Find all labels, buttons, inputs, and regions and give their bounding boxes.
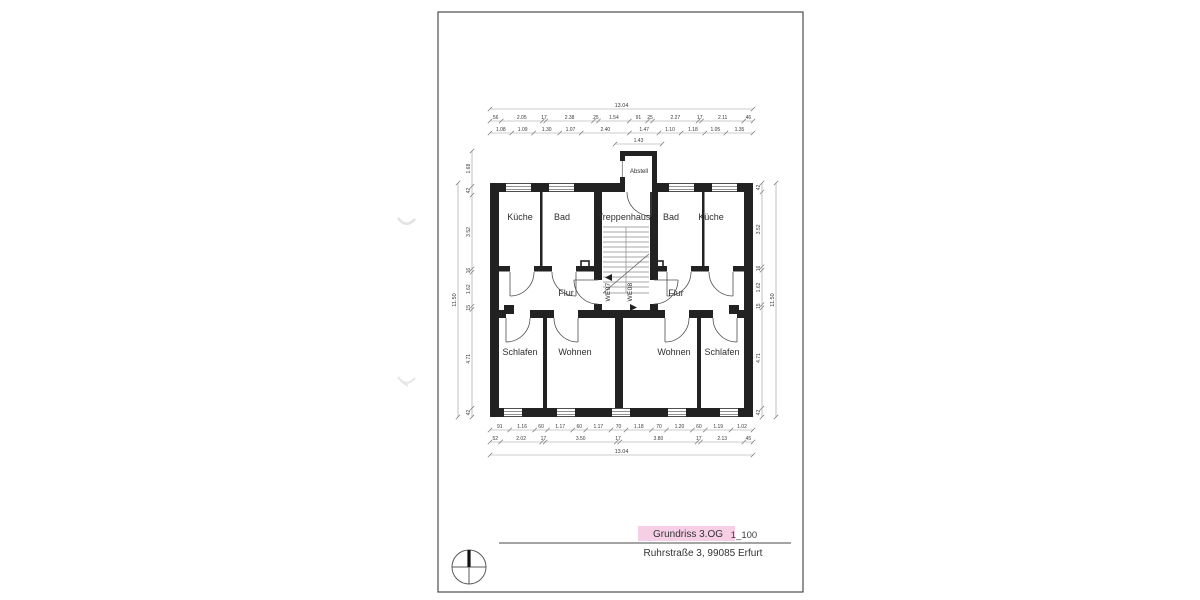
window-bottom-5 <box>720 409 738 416</box>
unit-label-we07: WE07 <box>605 282 612 301</box>
dim-value: 17 <box>615 436 621 442</box>
room-label-kueche-right: Küche <box>698 212 724 222</box>
scanned-drawing-canvas: Abstell Küche Bad Treppenhaus Bad Küche … <box>0 0 1200 600</box>
dim-value: 1.35 <box>735 127 745 133</box>
dim-value: 25 <box>593 115 599 121</box>
wall-kueche-bad-left <box>540 192 543 266</box>
scan-smudge <box>398 218 415 224</box>
dim-value: 3.80 <box>654 436 664 442</box>
dim-value: 1.54 <box>609 115 619 121</box>
dim-value: 1.62 <box>466 284 472 294</box>
window-bottom-2 <box>557 409 575 416</box>
dim-value: 42 <box>756 410 762 416</box>
dim-value: 60 <box>576 424 582 430</box>
dim-value: 91 <box>497 424 503 430</box>
chimney-block <box>504 305 514 314</box>
wall-flur-upper <box>733 266 744 272</box>
dim-value: 2.40 <box>600 127 610 133</box>
dim-value: 1.30 <box>542 127 552 133</box>
party-wall <box>615 318 623 408</box>
drawing-title: Grundriss 3.OG <box>653 529 723 540</box>
dim-value: 13.04 <box>615 103 629 109</box>
dim-value: 1.18 <box>688 127 698 133</box>
room-label-bad-left: Bad <box>554 212 570 222</box>
drawing-address: Ruhrstraße 3, 99085 Erfurt <box>644 548 763 559</box>
dim-value: 70 <box>656 424 662 430</box>
dim-value: 1.68 <box>466 164 472 174</box>
wall-flur-upper <box>691 266 709 272</box>
dim-value: 70 <box>616 424 622 430</box>
dim-value: 1.16 <box>517 424 527 430</box>
dim-value: 1.47 <box>639 127 649 133</box>
dim-value: 3.52 <box>756 224 762 234</box>
dim-value: 25 <box>647 115 653 121</box>
room-label-kueche-left: Küche <box>507 212 533 222</box>
dim-value: 1.62 <box>756 282 762 292</box>
dim-value: 2.05 <box>517 115 527 121</box>
wall-flur-lower <box>689 310 713 318</box>
room-label-flur-left: Flur <box>558 288 574 298</box>
dim-value: 42 <box>756 184 762 190</box>
dim-value: 91 <box>636 115 642 121</box>
chimney-block <box>609 310 619 318</box>
scan-smudge <box>398 377 415 386</box>
dim-value: 42 <box>466 410 472 416</box>
room-label-abstell: Abstell <box>630 169 648 175</box>
dim-value: 15 <box>466 305 472 311</box>
dim-value: 1.20 <box>675 424 685 430</box>
unit-label-we08: WE08 <box>627 282 634 301</box>
window-abstell <box>620 161 626 177</box>
dim-value: 1.07 <box>566 127 576 133</box>
room-label-schlafen-left: Schlafen <box>502 347 537 357</box>
wall-treppenhaus-left <box>594 192 602 280</box>
dim-value: 17 <box>541 436 547 442</box>
dim-value: 4.71 <box>756 353 762 363</box>
wall-flur-upper <box>534 266 552 272</box>
window-bottom-1 <box>504 409 522 416</box>
window-top-kueche-left <box>506 184 531 191</box>
dim-value: 52 <box>493 436 499 442</box>
dim-value: 1.02 <box>737 424 747 430</box>
north-compass-icon <box>452 550 486 584</box>
dim-value: 16 <box>756 266 762 272</box>
dim-value: 60 <box>538 424 544 430</box>
dim-value: 1.10 <box>665 127 675 133</box>
dim-value: 4.71 <box>466 354 472 364</box>
dim-value: 2.38 <box>565 115 575 121</box>
dim-value: 15 <box>756 303 762 309</box>
dim-value: 1.09 <box>518 127 528 133</box>
scan-artifacts <box>398 218 415 386</box>
room-label-treppenhaus: Treppenhaus <box>598 212 651 222</box>
wall-bad-kueche-right <box>702 192 705 266</box>
room-label-wohnen-right: Wohnen <box>657 347 690 357</box>
dim-value: 11.50 <box>770 293 776 306</box>
dim-value: 1.08 <box>496 127 506 133</box>
dim-value: 17 <box>541 115 547 121</box>
room-label-wohnen-left: Wohnen <box>558 347 591 357</box>
window-top-kueche-right <box>712 184 737 191</box>
dim-value: 45 <box>746 436 752 442</box>
window-top-bad-left <box>549 184 574 191</box>
dim-value: 56 <box>493 115 499 121</box>
wall-wohnen-schlafen-right <box>697 318 701 408</box>
dim-value: 2.27 <box>670 115 680 121</box>
room-label-schlafen-right: Schlafen <box>704 347 739 357</box>
dim-value: 3.50 <box>576 436 586 442</box>
wall-schlafen-wohnen-left <box>543 318 547 408</box>
window-bottom-3 <box>612 409 630 416</box>
dim-value: 1.17 <box>593 424 603 430</box>
floorplan-svg: Abstell Küche Bad Treppenhaus Bad Küche … <box>0 0 1200 600</box>
dim-value: 46 <box>746 115 752 121</box>
wall-flur-lower <box>530 310 554 318</box>
dim-value: 1.17 <box>555 424 565 430</box>
drawing-scale: 1_100 <box>731 530 757 541</box>
wall-flur-upper <box>499 266 510 272</box>
window-top-bad-right <box>669 184 694 191</box>
dim-value: 3.52 <box>466 227 472 237</box>
dim-value: 1.43 <box>634 138 644 144</box>
dim-value: 2.11 <box>718 115 728 121</box>
room-label-flur-right: Flur <box>668 288 684 298</box>
dim-value: 17 <box>697 115 703 121</box>
dim-value: 1.05 <box>710 127 720 133</box>
wall-flur-lower <box>578 310 665 318</box>
room-label-bad-right: Bad <box>663 212 679 222</box>
dim-value: 42 <box>466 188 472 194</box>
dim-value: 1.18 <box>634 424 644 430</box>
dim-value: 16 <box>466 268 472 274</box>
dim-value: 17 <box>696 436 702 442</box>
dim-value: 2.13 <box>717 436 727 442</box>
dim-value: 2.02 <box>516 436 526 442</box>
dim-value: 11.50 <box>452 293 458 306</box>
chimney-block <box>729 305 739 314</box>
window-bottom-4 <box>668 409 686 416</box>
dim-value: 60 <box>696 424 702 430</box>
dim-value: 13.04 <box>615 449 629 455</box>
dim-value: 1.19 <box>713 424 723 430</box>
